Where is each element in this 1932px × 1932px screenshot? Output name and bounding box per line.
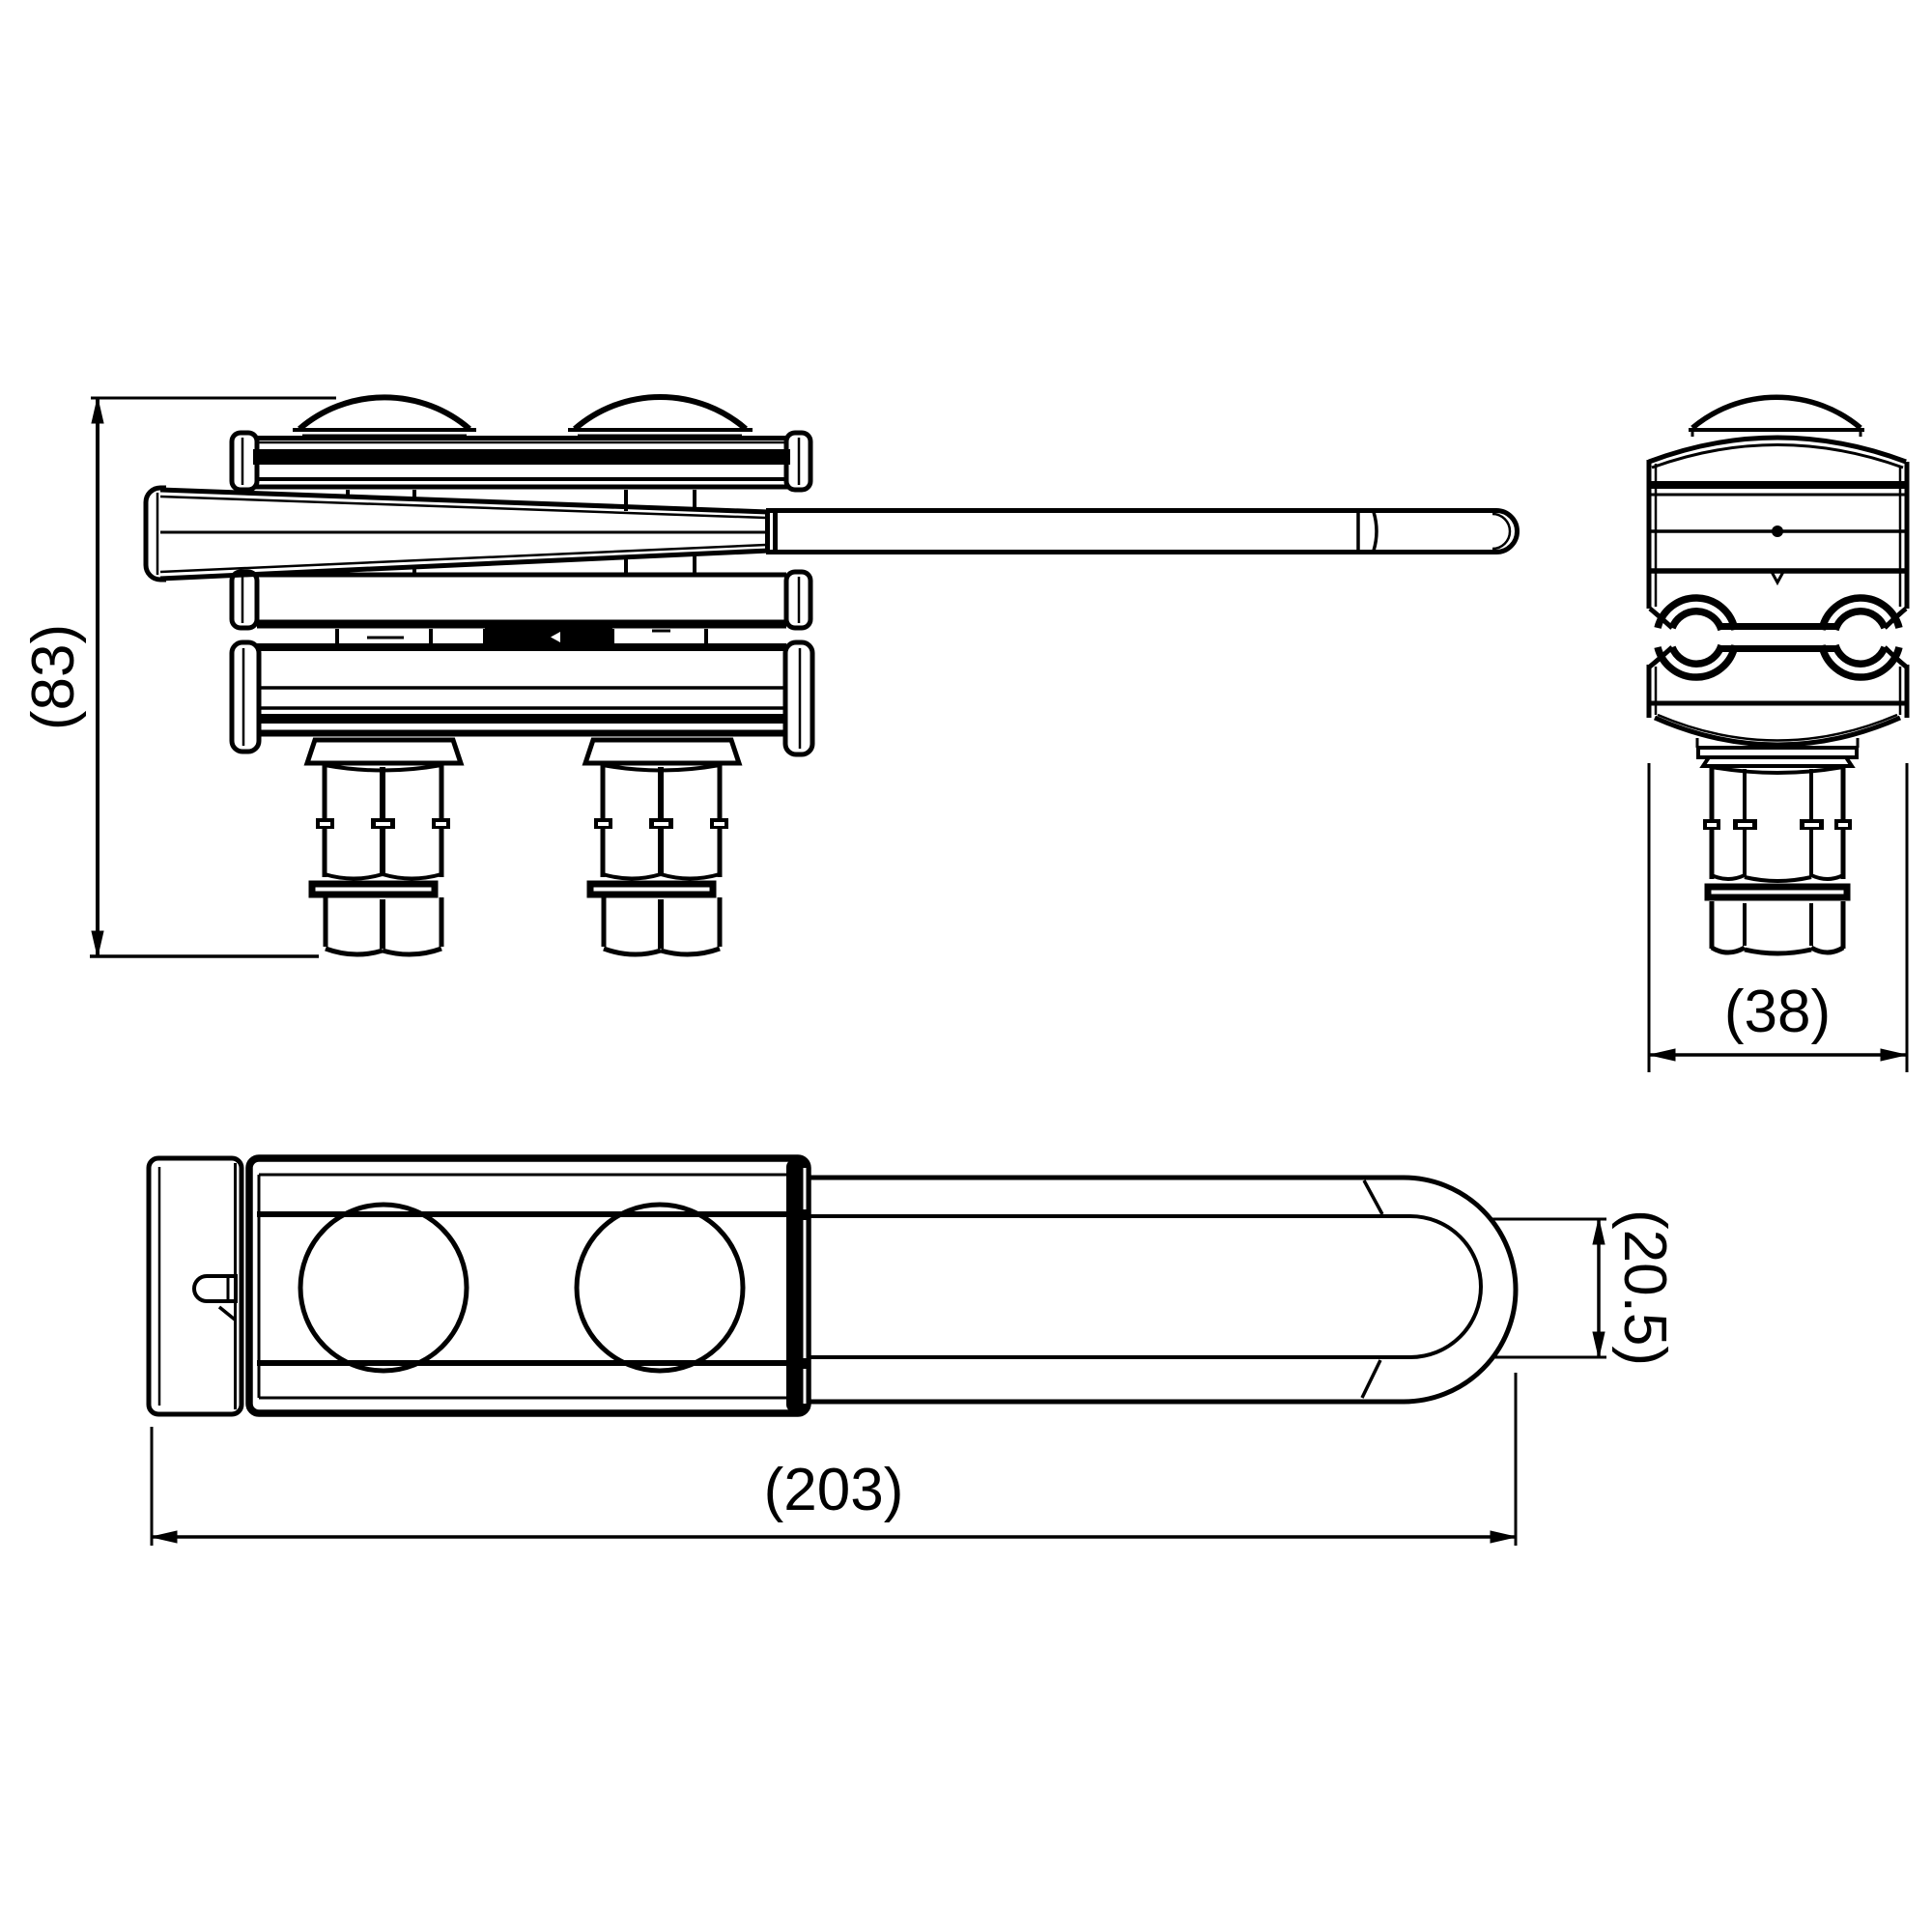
svg-text:(20.5): (20.5) [1611, 1209, 1678, 1366]
svg-text:(83): (83) [20, 624, 87, 730]
svg-text:(203): (203) [764, 1457, 904, 1523]
svg-text:(38): (38) [1724, 979, 1831, 1045]
